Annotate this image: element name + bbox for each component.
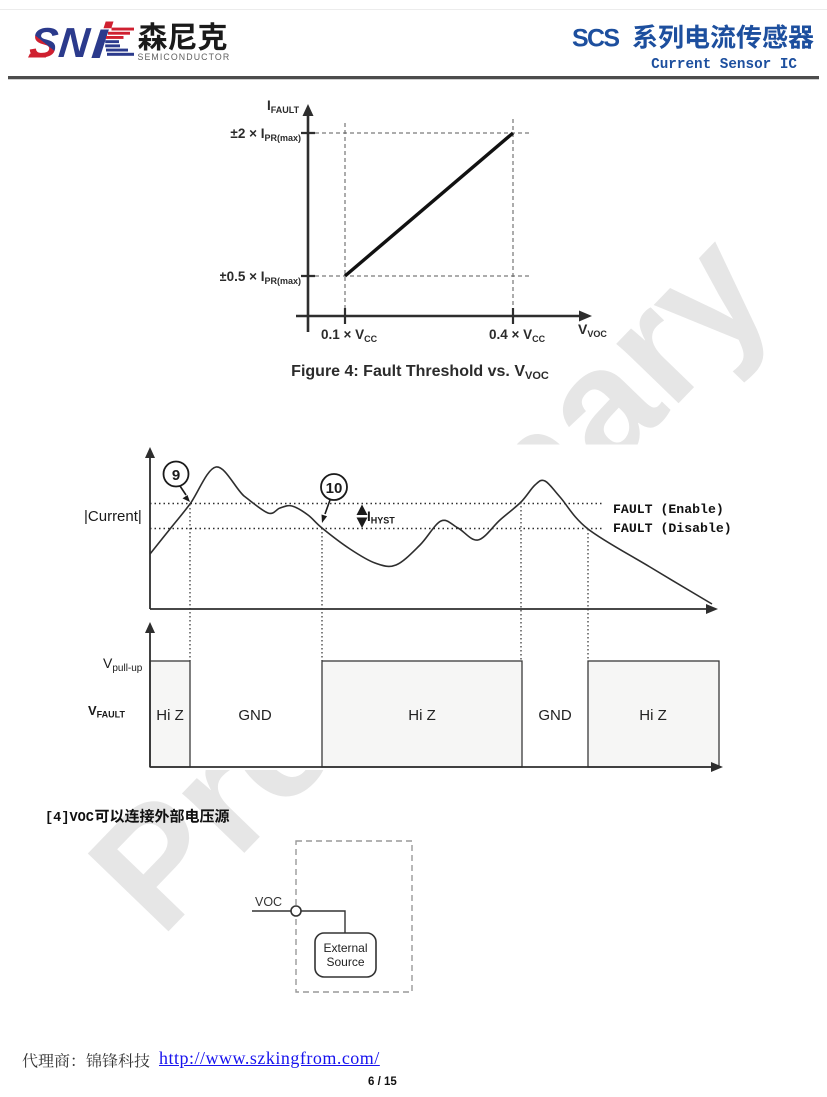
svg-text:External: External (323, 941, 367, 955)
svg-text:VOC: VOC (255, 895, 282, 909)
svg-text:FAULT (Disable): FAULT (Disable) (613, 521, 732, 536)
svg-text:Hi Z: Hi Z (156, 707, 184, 724)
svg-text:N: N (57, 19, 94, 64)
svg-text:[4]VOC: [4]VOC (45, 811, 94, 826)
svg-text:9: 9 (172, 467, 180, 484)
svg-text:GND: GND (538, 707, 572, 724)
svg-text:|Current|: |Current| (84, 508, 142, 525)
svg-text:Source: Source (326, 955, 364, 969)
svg-text:10: 10 (326, 480, 343, 497)
svg-text:Hi Z: Hi Z (408, 707, 436, 724)
svg-text:Hi Z: Hi Z (639, 707, 667, 724)
svg-text:SCS: SCS (572, 25, 620, 53)
svg-text:GND: GND (238, 707, 272, 724)
svg-text:SEMICONDUCTOR: SEMICONDUCTOR (138, 52, 231, 62)
svg-text:FAULT (Enable): FAULT (Enable) (613, 502, 724, 517)
